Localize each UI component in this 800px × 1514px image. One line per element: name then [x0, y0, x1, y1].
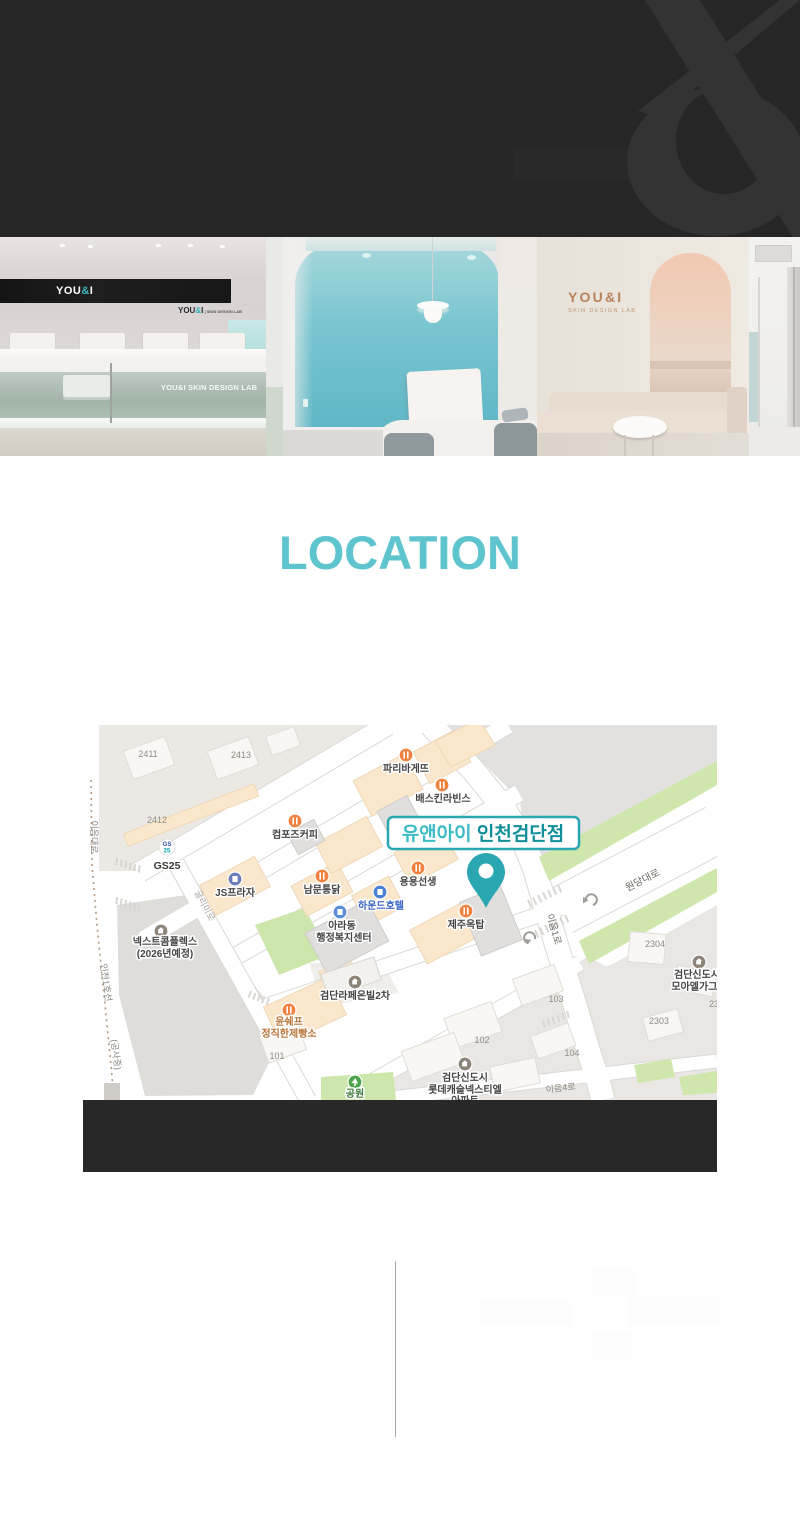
svg-text:공원: 공원 [346, 1087, 364, 1100]
svg-text:아라동: 아라동 [328, 919, 356, 932]
svg-text:검단라페온빌2차: 검단라페온빌2차 [320, 989, 391, 1002]
svg-text:25: 25 [164, 849, 171, 855]
svg-text:102: 102 [474, 1035, 489, 1045]
svg-text:검단신도시: 검단신도시 [442, 1071, 488, 1084]
svg-text:유앤아이 인천검단점: 유앤아이 인천검단점 [402, 823, 565, 845]
svg-text:용용선생: 용용선생 [400, 875, 437, 888]
svg-text:23: 23 [709, 999, 717, 1009]
svg-text:배스킨라빈스: 배스킨라빈스 [415, 792, 470, 805]
svg-text:JS프라자: JS프라자 [215, 886, 256, 899]
svg-text:행정복지센터: 행정복지센터 [316, 931, 371, 944]
svg-text:2303: 2303 [649, 1016, 669, 1026]
svg-text:GS: GS [163, 842, 172, 848]
svg-text:넥스트콤플렉스: 넥스트콤플렉스 [133, 935, 197, 948]
svg-text:2304: 2304 [645, 939, 665, 949]
svg-text:컴포즈커피: 컴포즈커피 [272, 828, 318, 841]
svg-text:103: 103 [548, 994, 563, 1004]
svg-text:윤쉐프: 윤쉐프 [275, 1015, 303, 1028]
svg-text:GS25: GS25 [154, 860, 181, 872]
svg-text:검단신도시: 검단신도시 [674, 968, 717, 981]
svg-text:(2026년예정): (2026년예정) [137, 947, 194, 960]
svg-text:남문통닭: 남문통닭 [304, 883, 342, 896]
svg-text:2413: 2413 [231, 750, 251, 760]
svg-text:101: 101 [269, 1051, 284, 1061]
svg-text:파리바게뜨: 파리바게뜨 [383, 762, 429, 775]
svg-text:모아엘가그랑: 모아엘가그랑 [671, 980, 717, 993]
svg-text:104: 104 [564, 1048, 579, 1058]
svg-text:정직한제빵소: 정직한제빵소 [261, 1027, 316, 1040]
svg-text:롯데캐슬넥스티엘: 롯데캐슬넥스티엘 [428, 1083, 502, 1096]
svg-text:2411: 2411 [138, 749, 157, 759]
svg-text:이음대로: 이음대로 [89, 820, 99, 853]
svg-text:하운드호텔: 하운드호텔 [358, 899, 404, 912]
svg-text:2412: 2412 [147, 815, 167, 825]
svg-text:제주옥탑: 제주옥탑 [448, 918, 486, 931]
